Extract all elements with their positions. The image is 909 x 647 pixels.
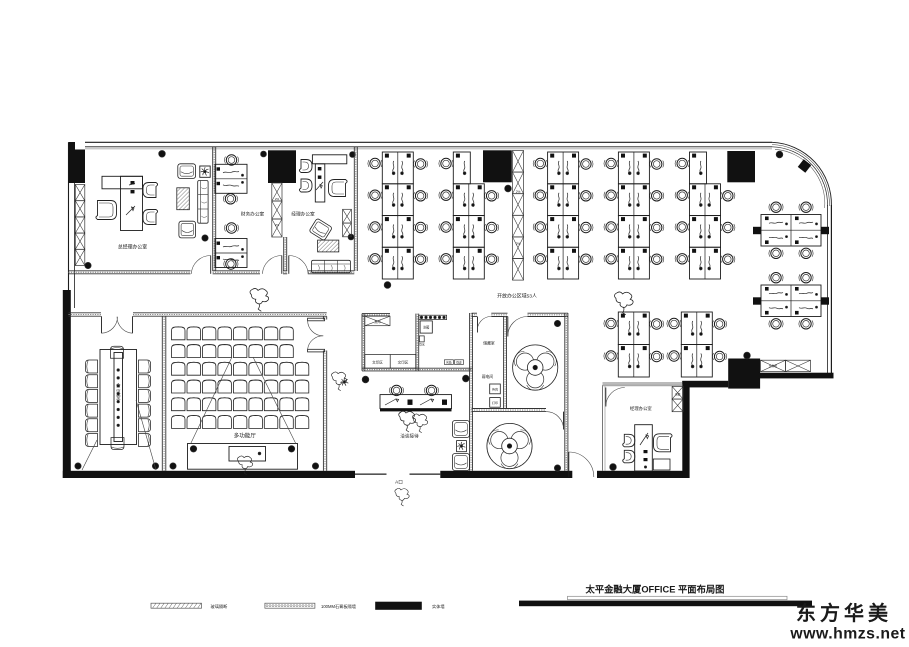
svg-text:文件柜: 文件柜 (769, 364, 778, 368)
svg-text:太平金融大厦OFFICE 平面布局图: 太平金融大厦OFFICE 平面布局图 (585, 584, 725, 595)
svg-text:实体墙: 实体墙 (432, 603, 445, 610)
svg-text:www.hmzs.net: www.hmzs.net (789, 626, 905, 643)
svg-text:2%: 2% (516, 242, 521, 246)
svg-text:文印区: 文印区 (398, 360, 409, 365)
svg-text:多功能厅: 多功能厅 (234, 432, 257, 440)
svg-text:文印: 文印 (374, 319, 380, 324)
svg-text:洽谈接待: 洽谈接待 (400, 433, 419, 440)
svg-text:弱电间: 弱电间 (482, 374, 494, 379)
svg-text:会: 会 (116, 382, 121, 389)
svg-text:书柜: 书柜 (675, 393, 681, 397)
svg-text:打印: 打印 (492, 400, 498, 405)
svg-text:财务办公室: 财务办公室 (241, 211, 265, 218)
svg-text:冰箱: 冰箱 (423, 325, 430, 330)
svg-text:传真: 传真 (492, 387, 498, 392)
svg-text:玻璃隔断: 玻璃隔断 (211, 603, 229, 610)
svg-text:文印区: 文印区 (372, 360, 383, 365)
svg-text:室: 室 (116, 394, 121, 400)
svg-text:微波: 微波 (456, 360, 462, 364)
svg-text:烤箱: 烤箱 (446, 360, 452, 364)
svg-text:开放办公区域53人: 开放办公区域53人 (497, 293, 537, 300)
svg-text:总经理办公室: 总经理办公室 (118, 244, 147, 251)
svg-text:储藏室: 储藏室 (483, 341, 495, 346)
svg-text:2%: 2% (275, 197, 280, 201)
svg-text:2%: 2% (516, 190, 521, 194)
svg-text:饮水: 饮水 (419, 343, 425, 347)
svg-text:2%: 2% (275, 223, 280, 227)
svg-text:议: 议 (116, 388, 121, 395)
svg-text:东方华美: 东方华美 (796, 601, 892, 625)
svg-text:经理办公室: 经理办公室 (630, 405, 653, 412)
svg-text:经理办公室: 经理办公室 (291, 211, 315, 218)
svg-text:A口: A口 (395, 480, 403, 486)
svg-text:100MM石膏板隔墙: 100MM石膏板隔墙 (321, 603, 356, 610)
